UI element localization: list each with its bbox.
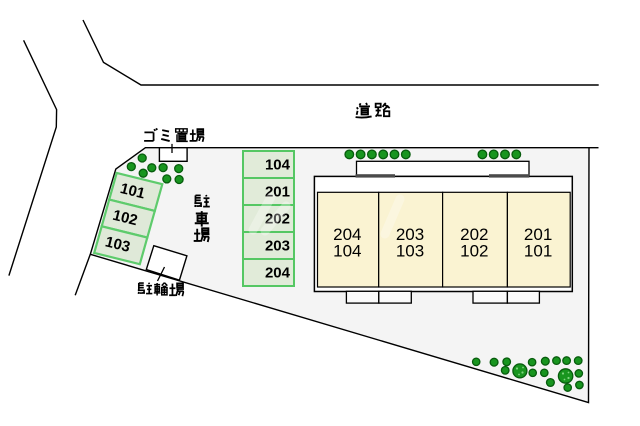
- svg-text:203: 203: [265, 237, 290, 254]
- svg-text:101: 101: [524, 241, 552, 260]
- svg-text:104: 104: [265, 156, 291, 173]
- svg-text:102: 102: [460, 241, 488, 260]
- svg-text:104: 104: [333, 241, 361, 260]
- svg-text:103: 103: [396, 241, 424, 260]
- svg-text:204: 204: [265, 264, 291, 281]
